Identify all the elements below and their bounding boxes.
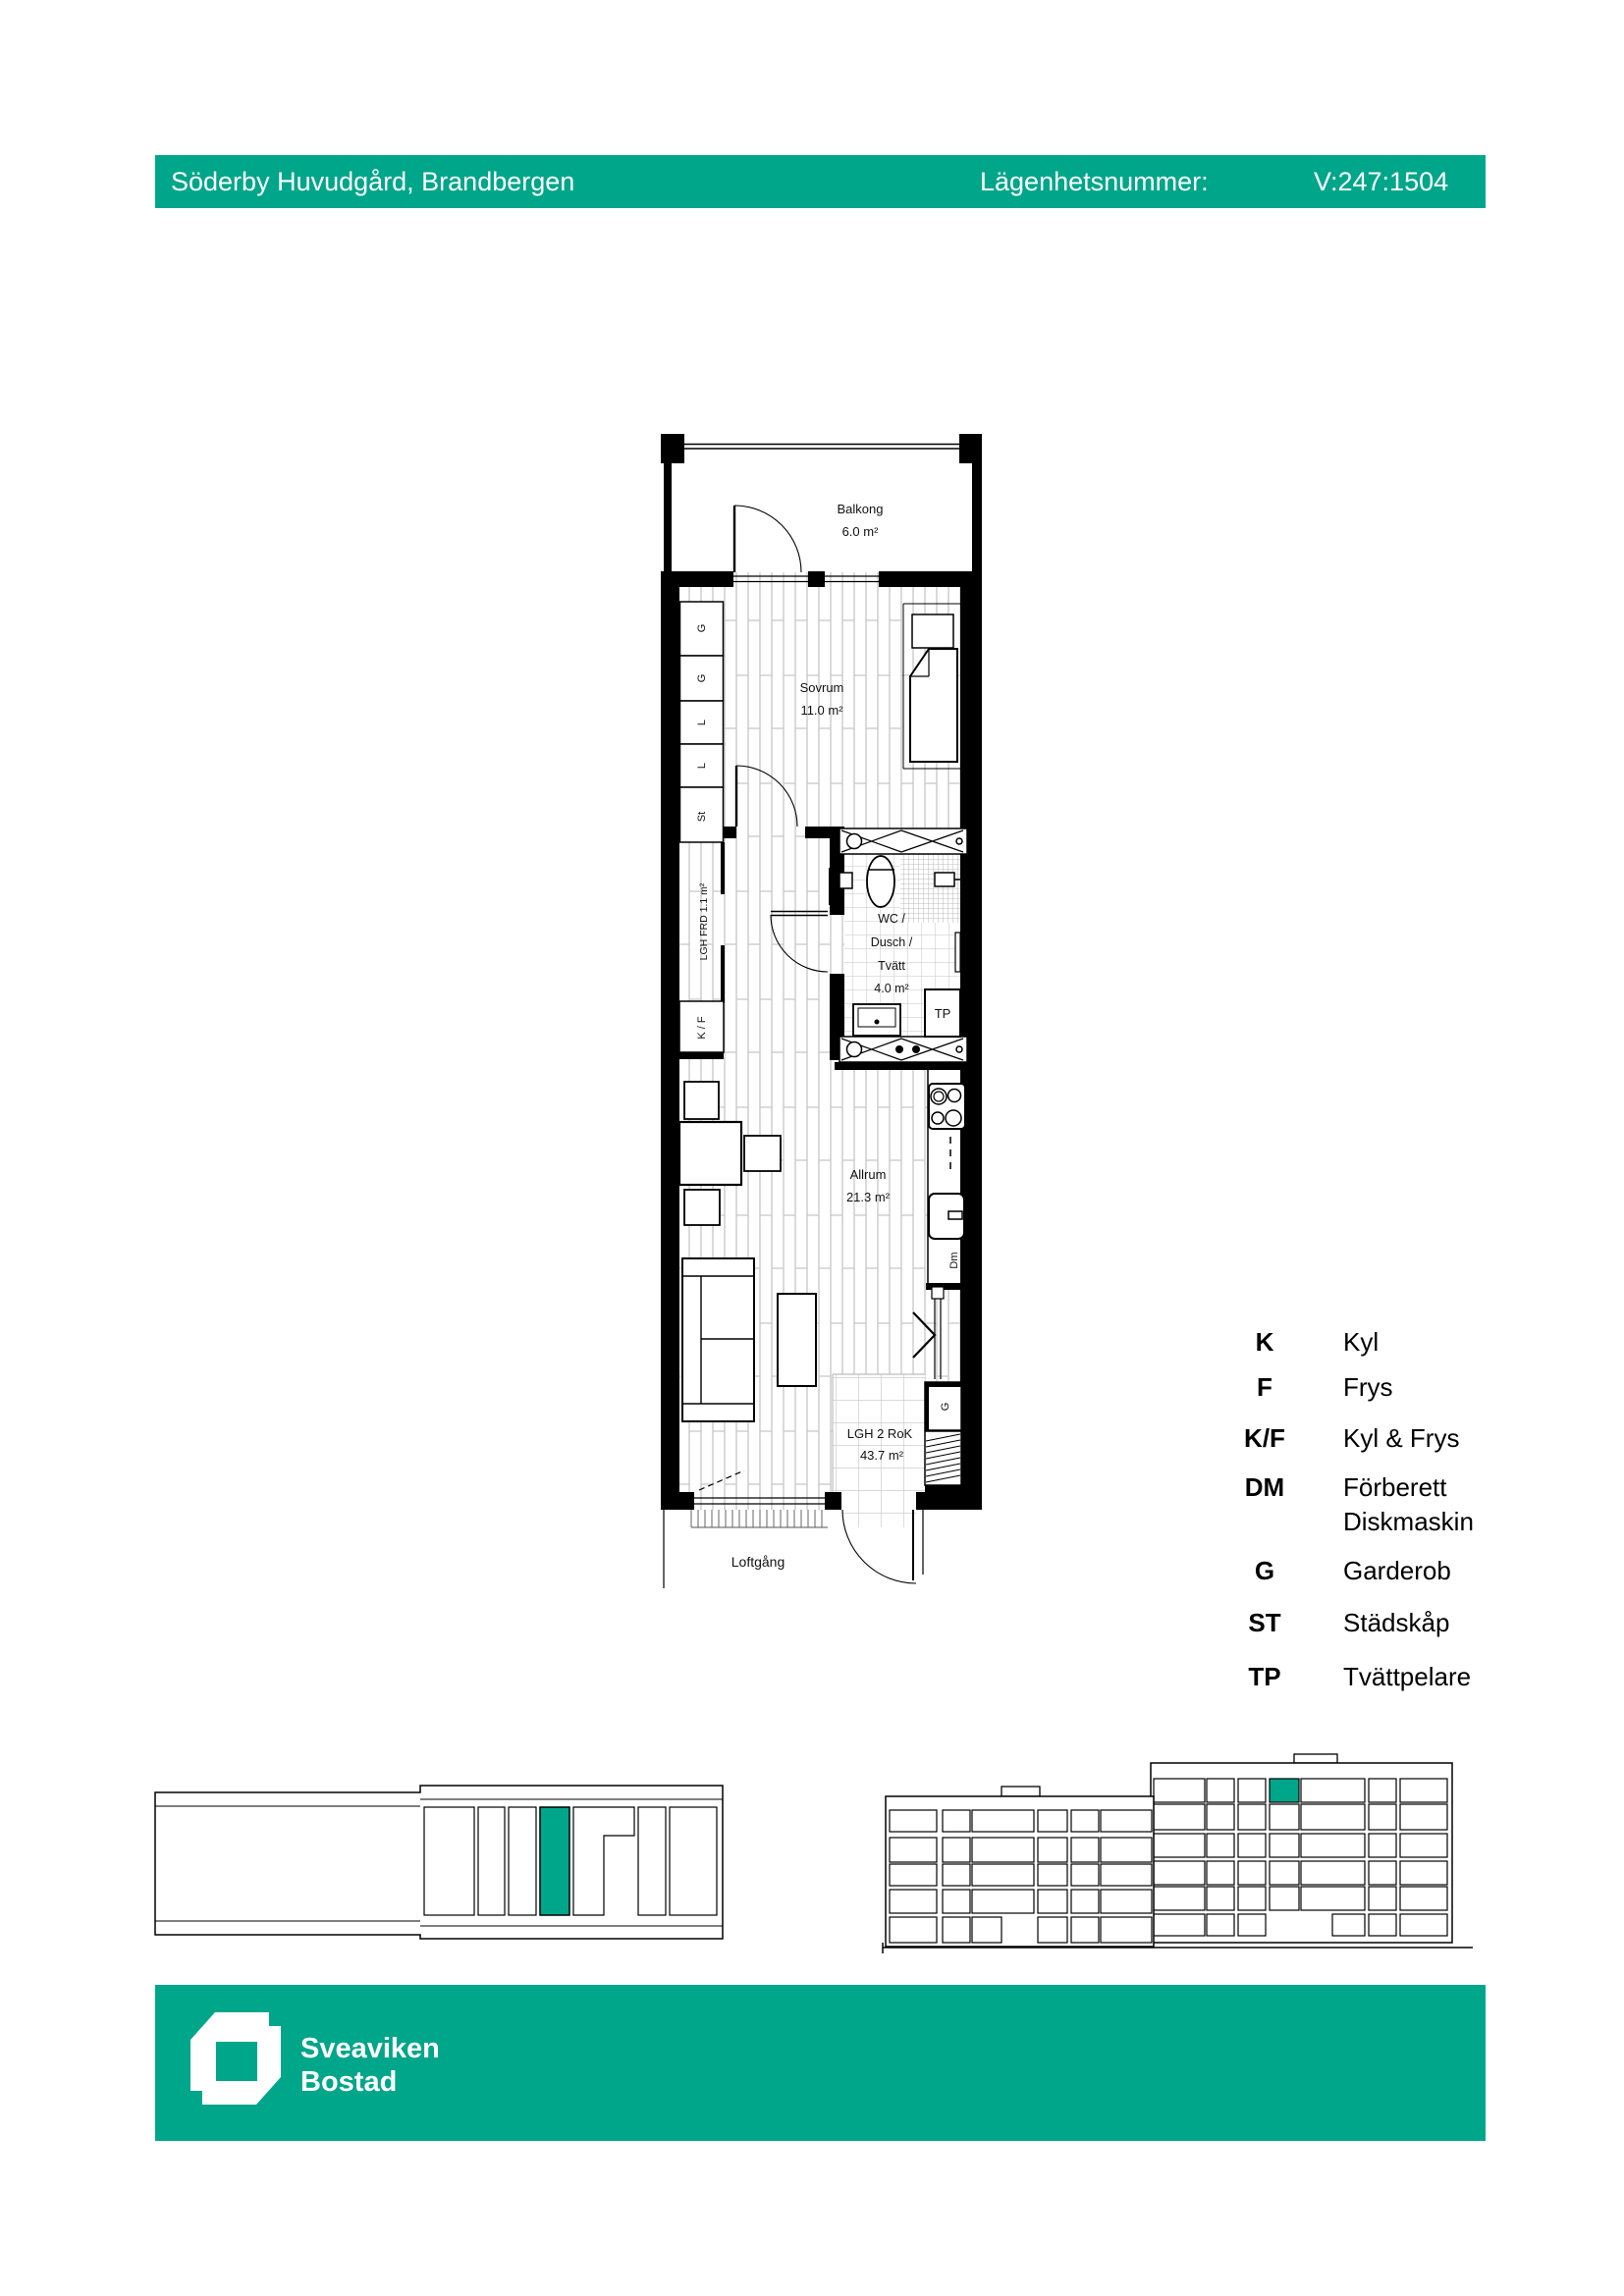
elevation-window	[1270, 1804, 1299, 1830]
wardrobe-label: G	[696, 674, 708, 683]
walkway-label: Loftgång	[731, 1554, 785, 1570]
apartment-name: LGH 2 RoK	[847, 1426, 913, 1441]
balcony-railing	[684, 445, 959, 450]
balcony	[661, 434, 982, 572]
floor-plan: G G L L St LGH FRD 1.1 m² K / F	[609, 393, 1041, 1610]
elevation-window	[1400, 1887, 1447, 1910]
washer-tower-label: TP	[935, 1006, 951, 1021]
elevation-window	[1038, 1810, 1067, 1832]
legend-desc: Garderob	[1343, 1556, 1451, 1586]
legend-abbr: TP	[1235, 1662, 1294, 1692]
elevation-window	[972, 1864, 1034, 1886]
elevation-window	[1400, 1804, 1447, 1830]
elevation-window	[1301, 1804, 1365, 1830]
elevation-window	[1154, 1804, 1205, 1830]
elevation-window	[1101, 1864, 1152, 1886]
elevation-window	[1038, 1838, 1067, 1862]
brand-name: Sveaviken Bostad	[300, 2032, 440, 2099]
legend-abbr: G	[1235, 1556, 1294, 1586]
apartment-storage: LGH FRD 1.1 m²	[679, 842, 725, 1003]
elevation-window	[943, 1917, 970, 1943]
elevation-window	[943, 1838, 970, 1862]
towel-rail	[955, 933, 960, 972]
elevation-window	[1207, 1914, 1234, 1936]
wardrobe-label: L	[696, 763, 708, 769]
elevation-window	[1101, 1810, 1152, 1832]
elevation-window	[1332, 1914, 1365, 1936]
elevation-window	[1369, 1861, 1396, 1885]
toilet	[867, 856, 894, 907]
living-window-sill	[694, 1492, 825, 1510]
legend-abbr: K/F	[1235, 1423, 1294, 1454]
apartment-area: 43.7 m²	[860, 1448, 904, 1463]
balcony-door-threshold	[733, 572, 808, 587]
elevation-window	[943, 1890, 970, 1913]
bedroom-window-sill	[825, 572, 879, 587]
legend-desc: Tvättpelare	[1343, 1662, 1471, 1692]
elevation-window	[972, 1810, 1034, 1832]
elevation-window	[1270, 1779, 1299, 1802]
living-area: 21.3 m²	[846, 1190, 891, 1204]
bathroom-label-3: Tvätt	[878, 959, 905, 973]
elevation-window	[1369, 1887, 1396, 1910]
elevation-window	[1101, 1838, 1152, 1862]
entry-wardrobe-label: G	[940, 1403, 951, 1412]
elevation-window	[972, 1890, 1034, 1913]
apartment-number-value: V:247:1504	[1314, 167, 1448, 197]
elevation-window	[1154, 1887, 1205, 1910]
entry-shaft-hatch	[925, 1431, 961, 1485]
living-label: Allrum	[850, 1167, 887, 1182]
legend-abbr: K	[1235, 1327, 1294, 1358]
bathroom-label-2: Dusch /	[871, 935, 913, 949]
elevation-window	[1071, 1864, 1099, 1886]
elevation-window	[1071, 1838, 1099, 1862]
balcony-label: Balkong	[838, 502, 884, 516]
elevation-window	[1238, 1779, 1266, 1802]
elevation-window	[943, 1864, 970, 1886]
legend-abbr: ST	[1235, 1608, 1294, 1638]
shaft-band-top	[839, 828, 967, 854]
legend-desc: Kyl	[1343, 1327, 1379, 1358]
elevation-window	[1101, 1917, 1152, 1943]
coffee-table	[778, 1294, 816, 1386]
elevation-window	[1238, 1834, 1266, 1857]
brand-line1: Sveaviken	[300, 2032, 440, 2065]
elevation-window	[890, 1838, 937, 1862]
building-elevation	[874, 1742, 1483, 1963]
apartment-number-label: Lägenhetsnummer:	[980, 167, 1209, 197]
elevation-window	[890, 1864, 937, 1886]
site-plan	[137, 1767, 746, 1953]
stove	[929, 1084, 965, 1129]
bathroom-label-1: WC /	[878, 912, 905, 926]
elevation-window	[1071, 1917, 1099, 1943]
elevation-window	[1154, 1779, 1205, 1802]
bedroom-wardrobes: G G L L St	[680, 602, 724, 846]
elevation-window	[1270, 1834, 1299, 1857]
balcony-area: 6.0 m²	[842, 524, 880, 539]
brand-line2: Bostad	[300, 2065, 440, 2099]
elevation-window	[1038, 1917, 1067, 1943]
fridge-freezer: K / F	[679, 1001, 724, 1059]
elevation-window	[1207, 1804, 1234, 1830]
washer-tower-box: TP	[925, 989, 960, 1037]
shaft-band-bottom	[839, 1037, 967, 1062]
dining-table	[679, 1122, 741, 1185]
washbasin	[853, 1004, 900, 1036]
brand-logo	[190, 2010, 285, 2109]
wardrobe-label: G	[696, 624, 708, 633]
elevation-window	[1238, 1804, 1266, 1830]
bedroom-label: Sovrum	[800, 680, 844, 695]
wardrobe-label: St	[696, 812, 708, 822]
elevation-window	[890, 1810, 937, 1832]
elevation-window	[1154, 1861, 1205, 1885]
elevation-window	[1207, 1779, 1234, 1802]
legend: KKyl FFrys K/FKyl & Frys DMFörberett Dis…	[1235, 1327, 1530, 1739]
site-plan-highlighted-unit	[540, 1807, 569, 1915]
elevation-window	[972, 1838, 1034, 1862]
elevation-window	[1207, 1834, 1234, 1857]
elevation-window	[1071, 1890, 1099, 1913]
elevation-window	[1207, 1861, 1234, 1885]
elevation-window	[1071, 1810, 1099, 1832]
elevation-window	[1400, 1834, 1447, 1857]
legend-abbr: DM	[1235, 1472, 1294, 1503]
bedroom-area: 11.0 m²	[800, 703, 843, 718]
chair	[684, 1190, 720, 1225]
elevation-window	[1369, 1914, 1396, 1936]
project-title: Söderby Huvudgård, Brandbergen	[171, 167, 574, 197]
elevation-window	[1238, 1887, 1266, 1910]
elevation-right-block	[1151, 1754, 1452, 1943]
fridge-freezer-label: K / F	[696, 1016, 708, 1040]
bed	[903, 604, 960, 769]
elevation-window	[1400, 1914, 1447, 1936]
legend-desc: Städskåp	[1343, 1608, 1449, 1638]
elevation-window	[1301, 1779, 1365, 1802]
sofa	[682, 1258, 754, 1421]
elevation-window	[972, 1917, 1001, 1943]
elevation-window	[890, 1917, 937, 1943]
elevation-window	[1369, 1779, 1396, 1802]
elevation-window	[1301, 1834, 1365, 1857]
legend-desc: Diskmaskin	[1343, 1507, 1474, 1537]
elevation-window	[1154, 1914, 1205, 1936]
kitchen-sink	[929, 1194, 964, 1239]
elevation-window	[1154, 1834, 1205, 1857]
footer-bar: Sveaviken Bostad	[155, 1985, 1486, 2141]
legend-desc: Frys	[1343, 1372, 1393, 1403]
elevation-left-block	[886, 1787, 1154, 1947]
balcony-door	[734, 506, 801, 572]
elevation-window	[1038, 1864, 1067, 1886]
elevation-window	[1400, 1861, 1447, 1885]
elevation-window	[943, 1810, 970, 1832]
elevation-window	[1301, 1861, 1365, 1885]
legend-desc: Kyl & Frys	[1343, 1423, 1459, 1454]
storage-label: LGH FRD 1.1 m²	[698, 882, 710, 960]
elevation-window	[1270, 1887, 1299, 1910]
legend-abbr: F	[1235, 1372, 1294, 1403]
elevation-window	[1270, 1861, 1299, 1885]
shower-area	[900, 854, 960, 923]
legend-desc: Förberett	[1343, 1472, 1447, 1503]
elevation-window	[1238, 1861, 1266, 1885]
chair	[684, 1082, 719, 1119]
chair	[744, 1136, 781, 1171]
dishwasher-label: Dm	[948, 1252, 960, 1268]
elevation-window	[890, 1890, 937, 1913]
elevation-window	[1400, 1779, 1447, 1802]
elevation-window	[1369, 1834, 1396, 1857]
elevation-window	[1238, 1914, 1266, 1936]
entry-wardrobe: G	[925, 1382, 961, 1430]
bathroom-area: 4.0 m²	[874, 982, 908, 995]
elevation-window	[1038, 1890, 1067, 1913]
elevation-window	[1301, 1887, 1365, 1910]
elevation-window	[1101, 1890, 1152, 1913]
elevation-window	[1207, 1887, 1234, 1910]
wall-basin	[829, 868, 839, 905]
elevation-window	[1369, 1804, 1396, 1830]
wardrobe-label: L	[696, 720, 708, 725]
header-bar: Söderby Huvudgård, Brandbergen Lägenhets…	[155, 155, 1486, 208]
